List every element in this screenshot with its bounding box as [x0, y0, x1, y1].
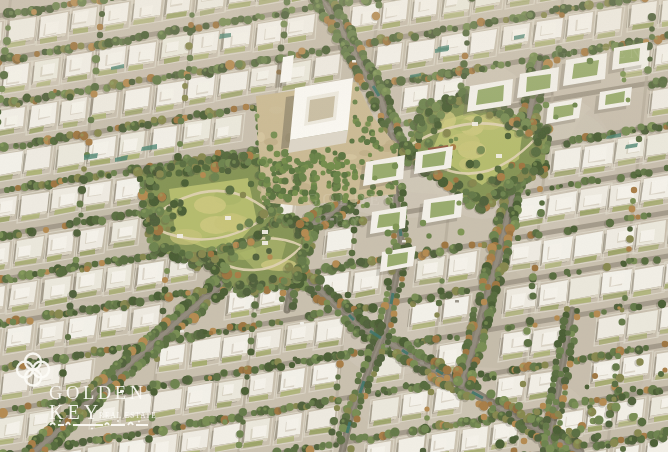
svg-text:GOLDEN: GOLDEN: [555, 44, 645, 61]
svg-text:KEY: KEY: [49, 401, 102, 423]
svg-text:GOLDEN: GOLDEN: [306, 190, 400, 209]
svg-text:REAL ESTATE: REAL ESTATE: [99, 412, 157, 420]
svg-text:GOLDEN: GOLDEN: [49, 383, 147, 403]
svg-text:KEY: KEY: [318, 211, 365, 230]
